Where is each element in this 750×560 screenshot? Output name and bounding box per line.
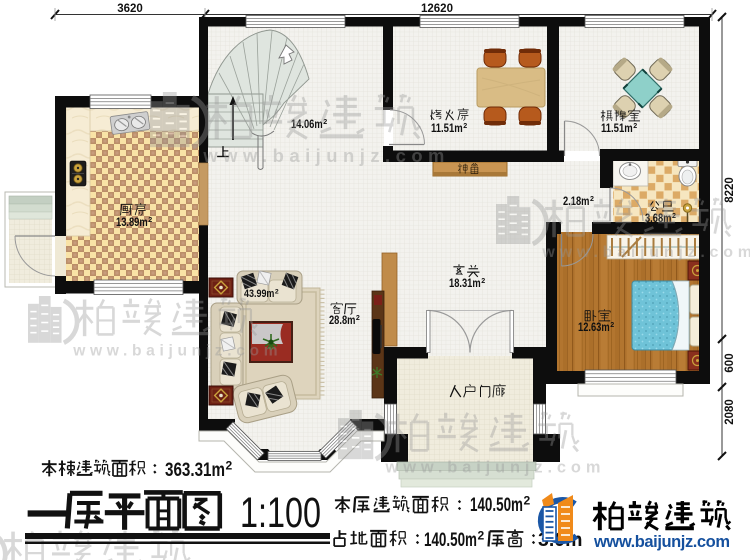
svg-text:2: 2: [481, 277, 485, 285]
svg-text:2: 2: [524, 494, 531, 508]
svg-text:2080: 2080: [724, 399, 736, 425]
svg-text:2: 2: [356, 314, 360, 322]
svg-text:2.18m: 2.18m: [563, 196, 589, 208]
svg-text:11.51m: 11.51m: [431, 123, 463, 135]
svg-text:11.51m: 11.51m: [601, 123, 633, 135]
svg-text:2: 2: [633, 122, 637, 130]
svg-text:363.31m: 363.31m: [165, 459, 225, 481]
svg-text:12.63m: 12.63m: [578, 322, 610, 334]
svg-text:43.99m: 43.99m: [244, 288, 275, 300]
svg-text:140.50m: 140.50m: [424, 529, 477, 551]
svg-text:3620: 3620: [117, 3, 143, 15]
svg-text:2: 2: [226, 459, 233, 473]
svg-text:2: 2: [148, 216, 152, 224]
svg-text:18.31m: 18.31m: [449, 278, 481, 290]
svg-text:1:100: 1:100: [240, 489, 321, 537]
svg-text:12620: 12620: [421, 3, 453, 15]
svg-text:28.8m: 28.8m: [329, 315, 355, 327]
svg-text:2: 2: [463, 122, 467, 130]
svg-text:140.50m: 140.50m: [470, 494, 523, 516]
svg-text:600: 600: [724, 353, 736, 372]
svg-text:2: 2: [590, 195, 594, 203]
svg-text:2: 2: [275, 288, 279, 295]
svg-text:2: 2: [478, 529, 485, 543]
svg-text:2: 2: [610, 321, 614, 329]
svg-text:www.baijunjz.com: www.baijunjz.com: [593, 533, 730, 551]
svg-text:13.89m: 13.89m: [116, 217, 148, 229]
svg-text:8220: 8220: [724, 177, 736, 203]
